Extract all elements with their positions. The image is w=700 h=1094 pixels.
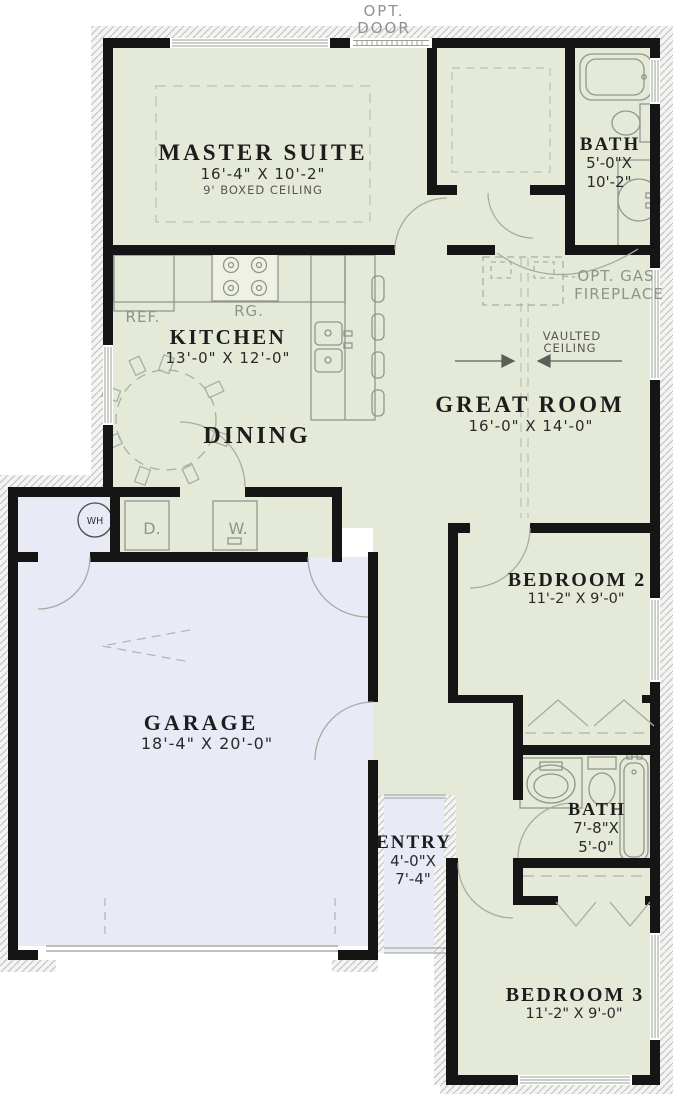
window-bedroom3-bottom [518, 1075, 632, 1085]
bedroom3-name: BEDROOM 3 [506, 984, 645, 1006]
bedroom2-name: BEDROOM 2 [508, 569, 647, 591]
kitchen-name: KITCHEN [170, 325, 287, 349]
dining-name: DINING [203, 423, 310, 449]
bath2-dims-2: 5'-0" [578, 838, 614, 856]
entry-dims-1: 4'-0"X [390, 852, 436, 870]
ref-label: REF. [126, 308, 161, 326]
range [212, 249, 278, 301]
bedroom2-dims: 11'-2" X 9'-0" [527, 591, 624, 607]
entry-dims-2: 7'-4" [395, 870, 431, 888]
opt-door-label-1: OPT. [363, 2, 404, 20]
window-bath1-right [650, 58, 660, 104]
garage-door [46, 946, 338, 951]
rg-label: RG. [234, 302, 264, 320]
entry-name: ENTRY [376, 832, 452, 853]
bedroom3-dims: 11'-2" X 9'-0" [525, 1006, 622, 1022]
dryer-label: D. [143, 519, 160, 538]
garage-dims: 18'-4" X 20'-0" [141, 734, 273, 753]
great-room-name: GREAT ROOM [435, 392, 625, 417]
washer-label: W. [228, 519, 247, 538]
bath1-name: BATH [580, 134, 640, 155]
bath2-name: BATH [568, 799, 626, 819]
opt-gas-label-1: OPT. GAS [577, 267, 654, 285]
window-bedroom3-right [650, 933, 660, 1040]
opt-gas-label-2: FIREPLACE [574, 285, 664, 303]
floor-plan-page: OPT. DOOR MASTER SUITE 16'-4" X 10'-2" 9… [0, 0, 700, 1094]
master-suite-note: 9' BOXED CEILING [203, 183, 323, 197]
window-kitchen-left [103, 345, 113, 425]
bath1-dims-2: 10'-2" [586, 173, 631, 191]
opt-door-label-2: DOOR [357, 19, 411, 37]
bath1-dims-1: 5'-0"X [586, 154, 632, 172]
master-suite-dims: 16'-4" X 10'-2" [201, 165, 326, 183]
garage-name: GARAGE [144, 710, 259, 735]
opt-door-opening [350, 38, 432, 48]
bath2-dims-1: 7'-8"X [573, 819, 619, 837]
floor-plan: OPT. DOOR MASTER SUITE 16'-4" X 10'-2" 9… [0, 0, 700, 1094]
kitchen-dims: 13'-0" X 12'-0" [166, 349, 291, 367]
great-room-dims: 16'-0" X 14'-0" [469, 417, 594, 435]
window-bedroom2-right [650, 598, 660, 682]
master-suite-name: MASTER SUITE [158, 140, 367, 165]
wh-label: WH [87, 516, 104, 527]
window-master-top [170, 38, 330, 48]
vaulted-label-2: CEILING [544, 341, 597, 355]
